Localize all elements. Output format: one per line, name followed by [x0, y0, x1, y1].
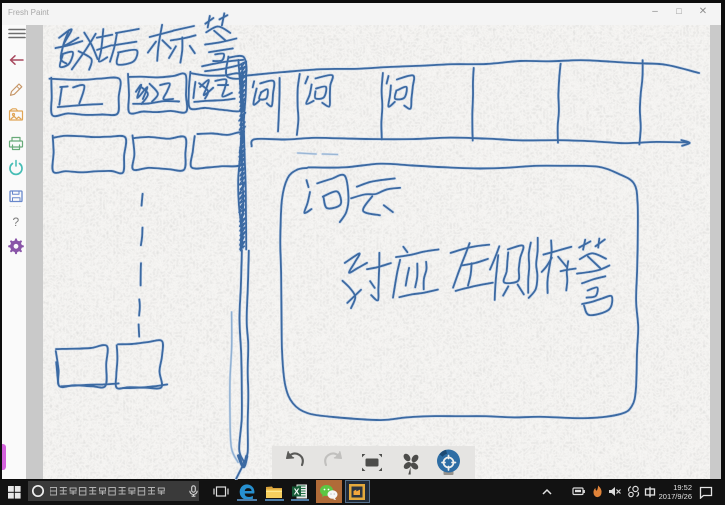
svg-text:X: X [294, 487, 300, 497]
